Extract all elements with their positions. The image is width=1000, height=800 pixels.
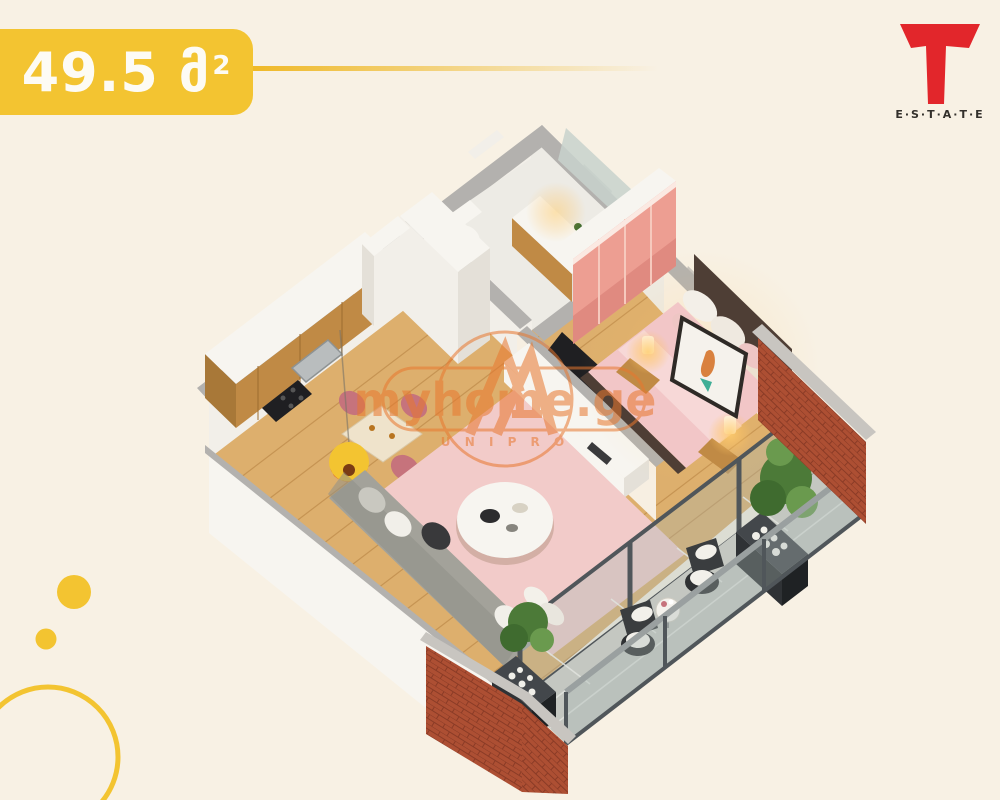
real-estate-floorplan-image: myhome.ge U N I P R O 49.5 მ2 E·S·T·A·T·… (0, 0, 1000, 800)
area-superscript: 2 (212, 51, 231, 81)
decor-circles (0, 575, 118, 800)
t-estate-logo-word: E·S·T·A·T·E (888, 108, 992, 121)
banner-divider-line (253, 66, 658, 71)
t-estate-logo-icon (895, 18, 985, 106)
area-banner: 49.5 მ2 (0, 29, 253, 115)
floor-plan-rendering: myhome.ge U N I P R O (0, 0, 1000, 800)
coffee-table (456, 482, 554, 565)
watermark-sub-text: U N I P R O (441, 435, 569, 449)
area-value: 49.5 (22, 41, 159, 104)
area-unit: მ (179, 41, 211, 104)
t-estate-logo: E·S·T·A·T·E (888, 18, 992, 136)
